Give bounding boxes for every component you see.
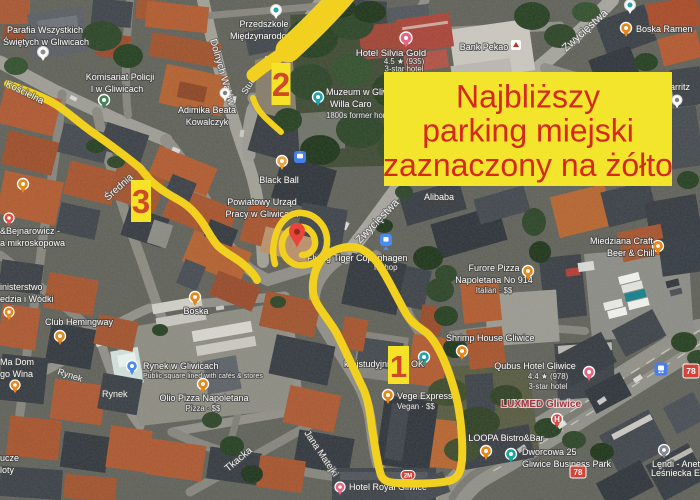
svg-text:zaznaczony na żółto: zaznaczony na żółto xyxy=(383,147,673,183)
svg-text:Najbliższy: Najbliższy xyxy=(456,79,600,115)
svg-text:3: 3 xyxy=(132,183,150,220)
svg-text:parking miejski: parking miejski xyxy=(422,113,634,149)
svg-text:2: 2 xyxy=(272,66,290,103)
svg-text:1: 1 xyxy=(390,349,407,384)
